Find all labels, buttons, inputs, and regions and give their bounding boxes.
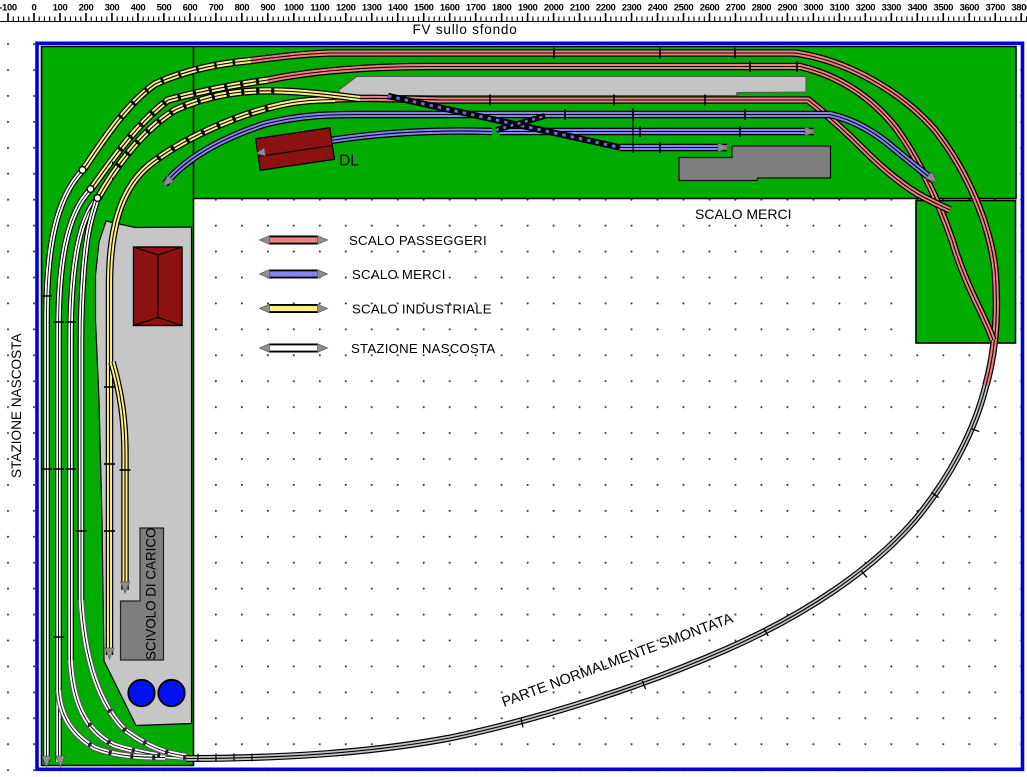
svg-text:100: 100: [53, 3, 68, 14]
svg-text:3100: 3100: [830, 3, 850, 14]
svg-text:2600: 2600: [700, 3, 720, 14]
svg-text:1500: 1500: [414, 3, 434, 14]
svg-text:200: 200: [79, 3, 94, 14]
svg-text:DL: DL: [339, 153, 359, 170]
svg-text:1100: 1100: [310, 3, 329, 14]
svg-text:2900: 2900: [778, 3, 798, 14]
svg-text:3600: 3600: [960, 3, 980, 14]
svg-text:3000: 3000: [804, 3, 824, 14]
svg-text:2300: 2300: [622, 3, 642, 14]
svg-text:STAZIONE NASCOSTA: STAZIONE NASCOSTA: [9, 333, 24, 478]
svg-text:1700: 1700: [466, 3, 486, 14]
svg-text:STAZIONE NASCOSTA: STAZIONE NASCOSTA: [351, 341, 495, 356]
svg-text:SCALO MERCI: SCALO MERCI: [352, 267, 446, 282]
svg-text:3200: 3200: [856, 3, 876, 14]
svg-text:SCIVOLO DI CARICO: SCIVOLO DI CARICO: [144, 528, 159, 660]
svg-text:2200: 2200: [596, 3, 616, 14]
svg-text:2500: 2500: [674, 3, 694, 14]
svg-text:2100: 2100: [570, 3, 590, 14]
svg-text:1000: 1000: [284, 3, 304, 14]
svg-text:SCALO INDUSTRIALE: SCALO INDUSTRIALE: [352, 301, 492, 316]
svg-text:1900: 1900: [518, 3, 538, 14]
svg-text:1800: 1800: [492, 3, 512, 14]
svg-text:3500: 3500: [934, 3, 954, 14]
svg-text:SCALO PASSEGGERI: SCALO PASSEGGERI: [349, 233, 487, 248]
svg-text:1300: 1300: [362, 3, 382, 14]
svg-text:600: 600: [183, 3, 198, 14]
svg-text:3400: 3400: [908, 3, 928, 14]
svg-text:2800: 2800: [752, 3, 772, 14]
svg-text:2400: 2400: [648, 3, 668, 14]
svg-text:3700: 3700: [986, 3, 1006, 14]
svg-text:400: 400: [131, 3, 146, 14]
svg-text:2700: 2700: [726, 3, 746, 14]
svg-text:SCALO MERCI: SCALO MERCI: [695, 206, 791, 222]
svg-text:1200: 1200: [336, 3, 356, 14]
svg-text:1400: 1400: [388, 3, 408, 14]
svg-text:2000: 2000: [544, 3, 564, 14]
svg-text:800: 800: [234, 3, 249, 14]
svg-text:700: 700: [209, 3, 224, 14]
svg-text:1600: 1600: [440, 3, 460, 14]
svg-text:3800: 3800: [1011, 3, 1027, 14]
svg-text:500: 500: [157, 3, 172, 14]
svg-text:300: 300: [105, 3, 120, 14]
svg-text:3300: 3300: [882, 3, 902, 14]
svg-text:0: 0: [32, 3, 37, 14]
svg-text:-100: -100: [0, 3, 17, 14]
svg-text:900: 900: [260, 3, 275, 14]
svg-text:FV sullo sfondo: FV sullo sfondo: [412, 22, 517, 37]
